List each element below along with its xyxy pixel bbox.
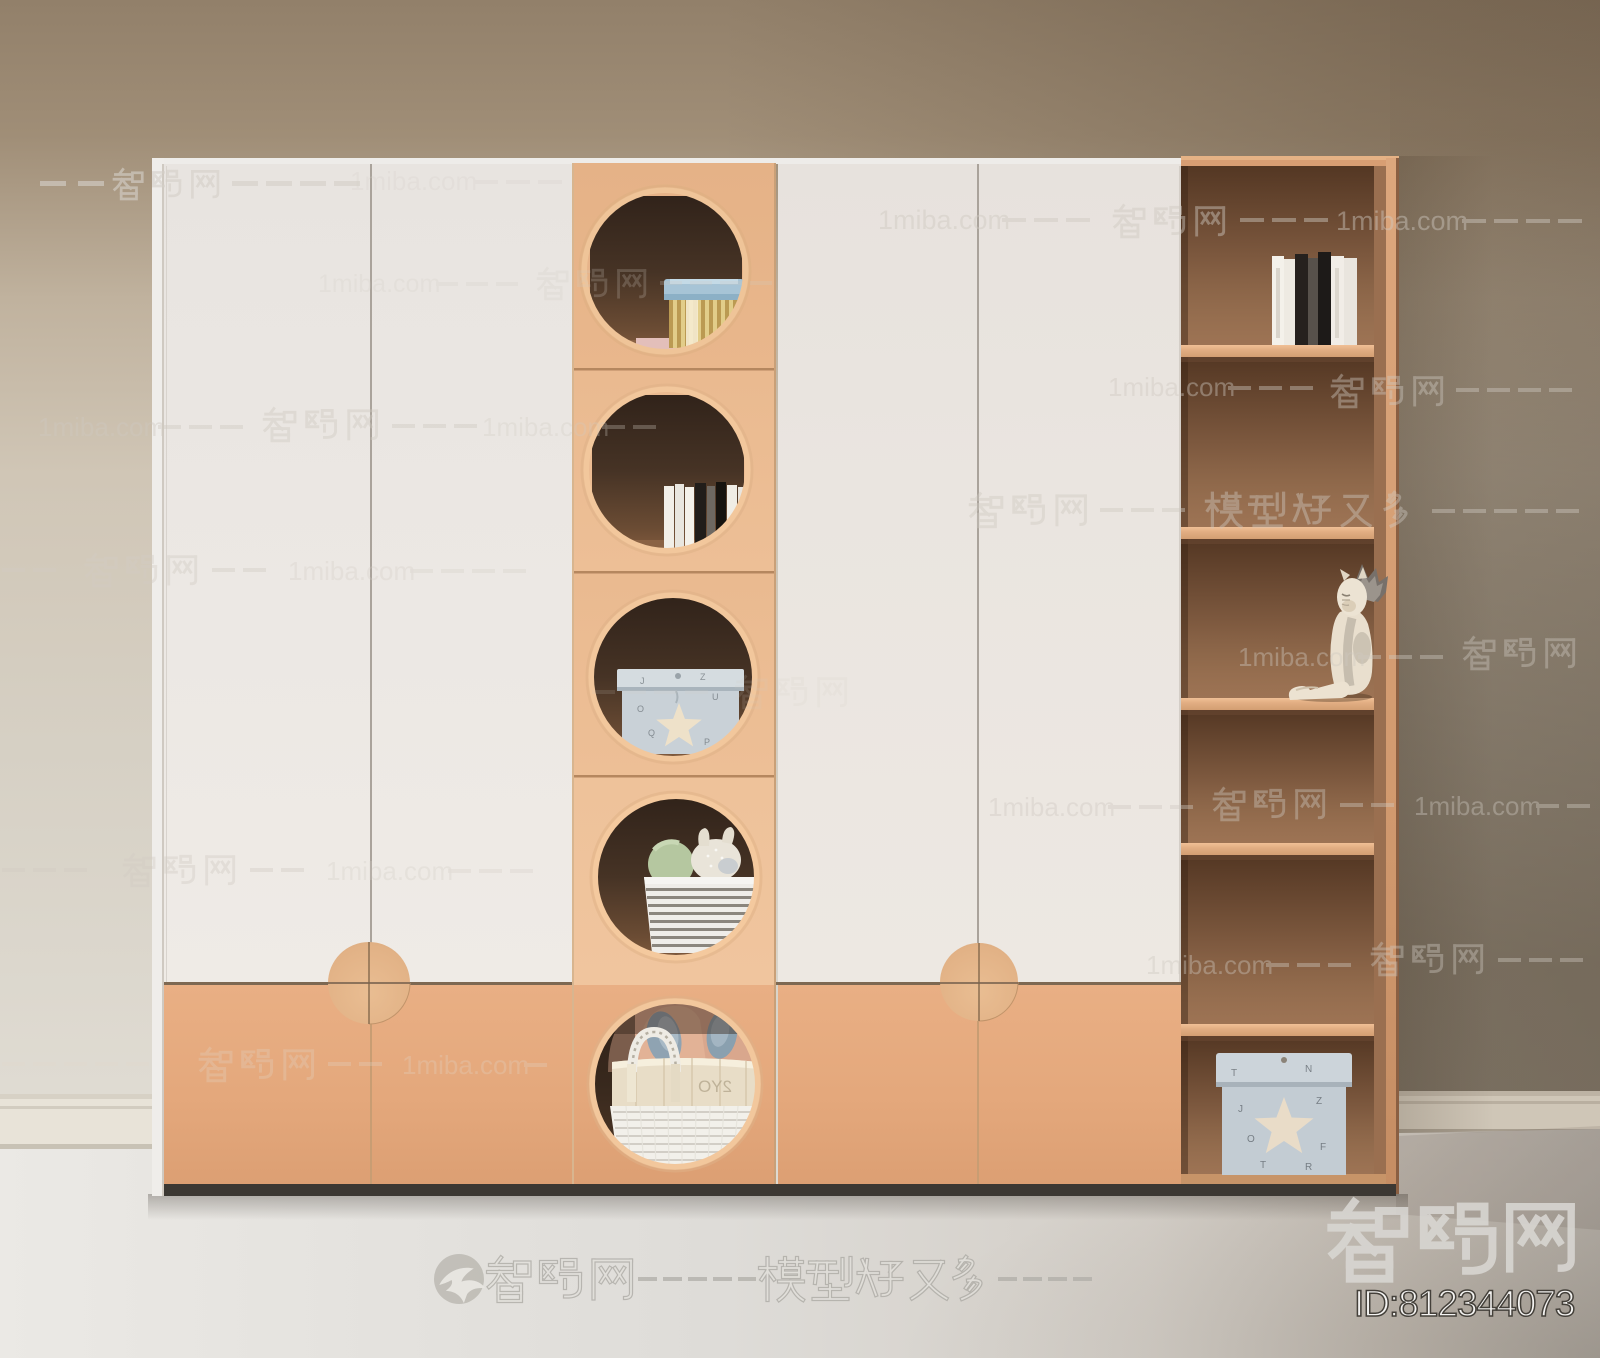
svg-text:U: U (712, 692, 719, 702)
svg-text:R: R (1305, 1162, 1312, 1173)
svg-text:1miba.com: 1miba.com (402, 1050, 529, 1080)
svg-text:O: O (1247, 1134, 1255, 1145)
svg-text:J: J (640, 676, 645, 686)
svg-text:N: N (1305, 1064, 1312, 1075)
svg-text:P: P (704, 737, 710, 747)
svg-text:Z: Z (700, 672, 706, 682)
svg-text:J: J (1238, 1104, 1243, 1115)
svg-text:1miba.com: 1miba.com (1238, 642, 1365, 672)
svg-text:1miba.com: 1miba.com (1414, 791, 1541, 821)
svg-text:1miba.com: 1miba.com (988, 792, 1115, 822)
svg-text:2YO: 2YO (698, 1077, 732, 1096)
svg-text:1miba.com: 1miba.com (1336, 206, 1468, 236)
svg-text:1miba.com: 1miba.com (38, 412, 165, 442)
svg-text:Q: Q (648, 728, 655, 738)
svg-text:1miba.com: 1miba.com (350, 166, 477, 196)
svg-text:T: T (1260, 1160, 1266, 1171)
svg-text:Z: Z (1316, 1096, 1322, 1107)
svg-text:T: T (1231, 1068, 1237, 1079)
svg-text:1miba.com: 1miba.com (318, 270, 440, 298)
svg-text:F: F (1320, 1142, 1326, 1153)
svg-text:O: O (637, 704, 644, 714)
svg-text:1miba.com: 1miba.com (1108, 372, 1235, 402)
svg-text:1miba.com: 1miba.com (1146, 950, 1273, 980)
svg-text:1miba.com: 1miba.com (878, 205, 1010, 235)
svg-text:1miba.com: 1miba.com (288, 556, 415, 586)
svg-text:1miba.com: 1miba.com (326, 856, 453, 886)
svg-text:ID:812344073: ID:812344073 (1354, 1283, 1574, 1324)
svg-text:1miba.com: 1miba.com (482, 412, 609, 442)
